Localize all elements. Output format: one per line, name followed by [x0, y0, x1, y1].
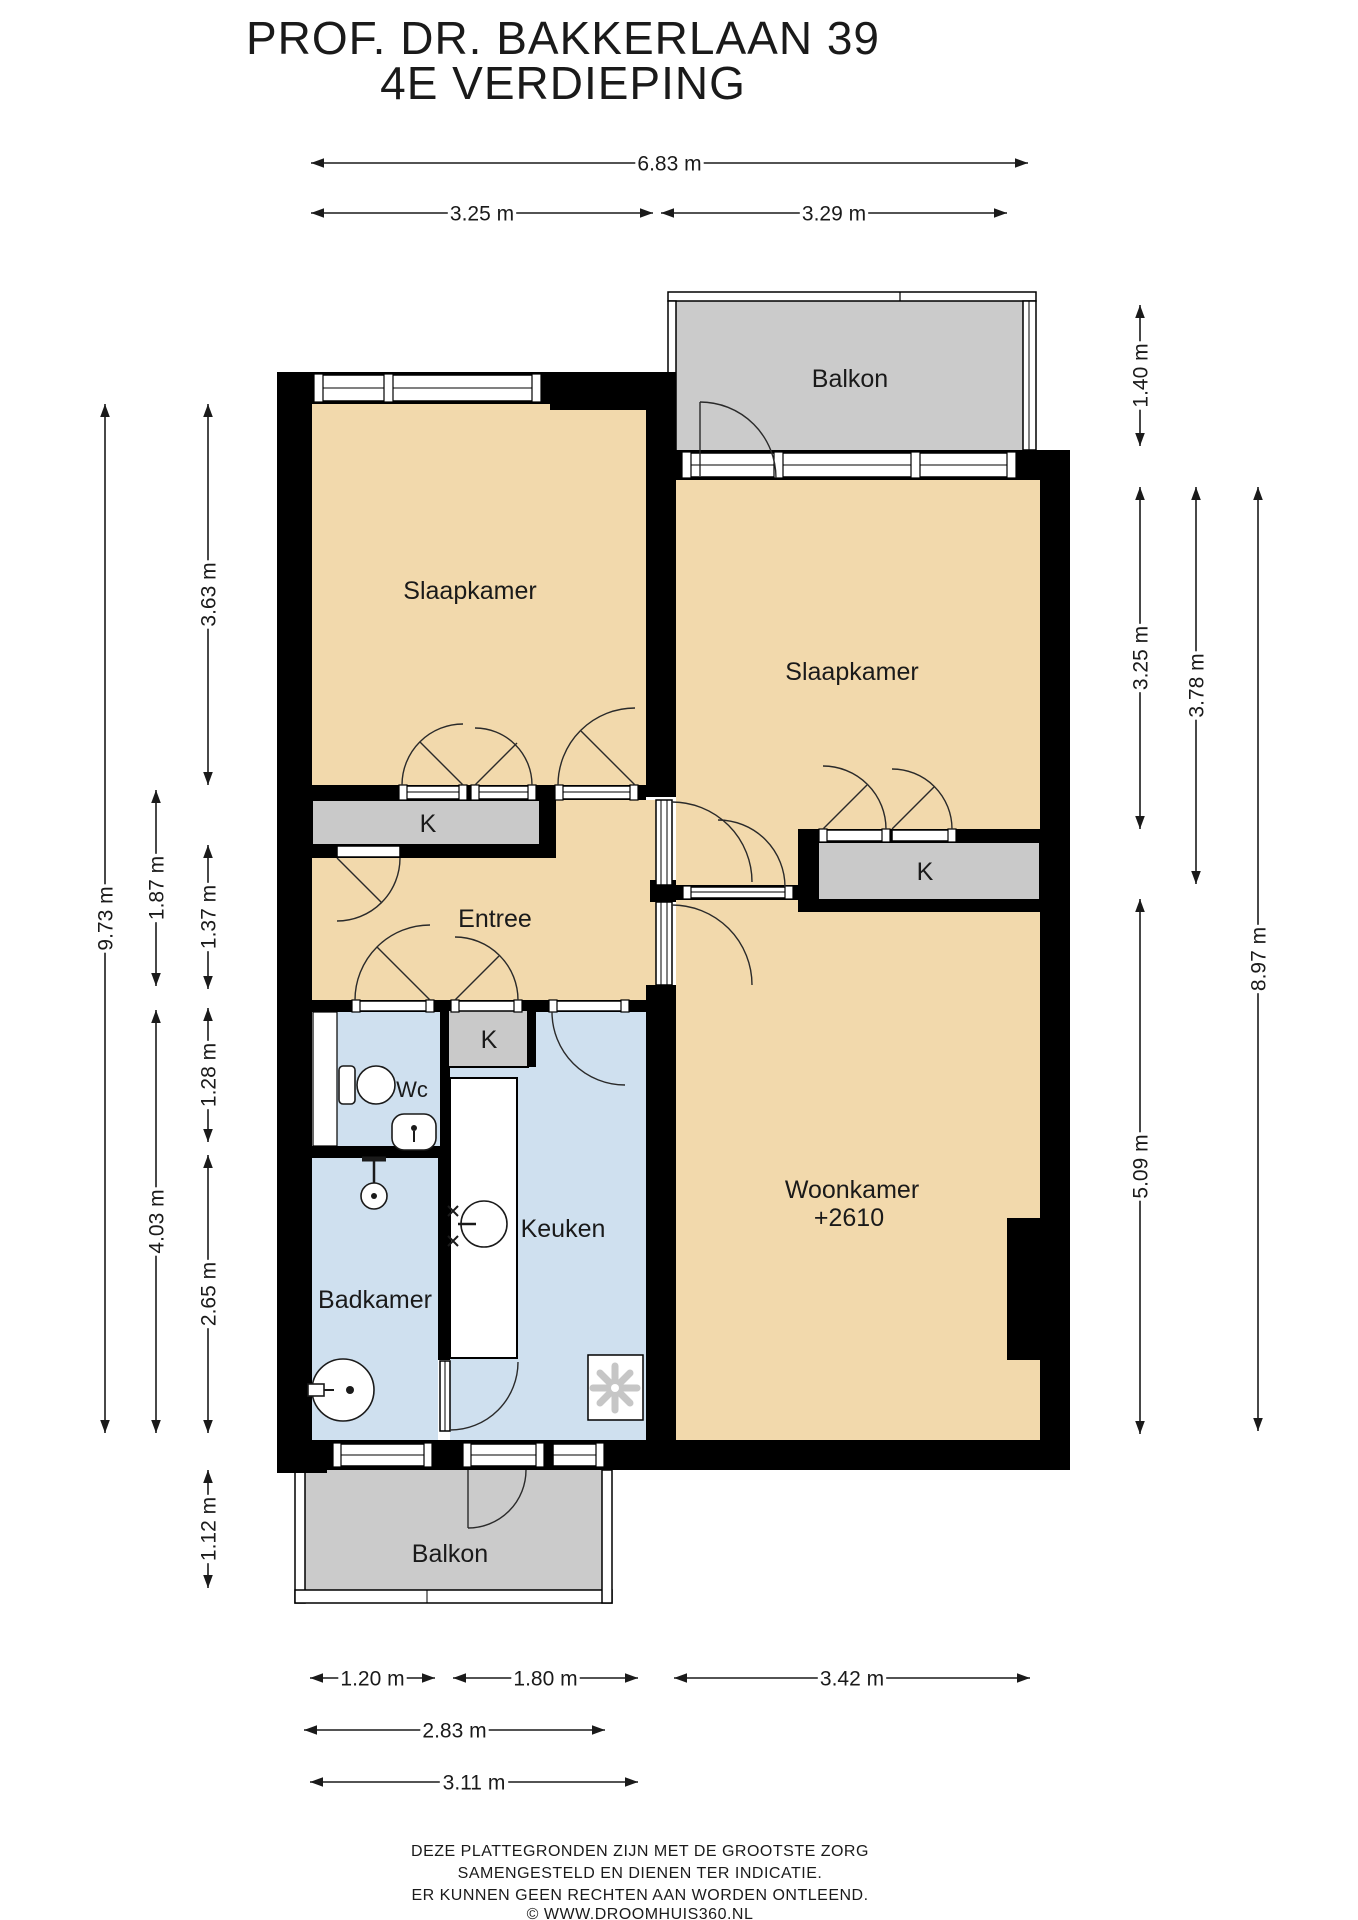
- dim-label: 3.63 m: [198, 562, 221, 626]
- dimension-6-83-m: 6.83 m: [311, 150, 1028, 176]
- balkon-bottom-floor: [305, 1470, 602, 1590]
- dimension-2-83-m: 2.83 m: [304, 1717, 605, 1743]
- floorplan-page: PROF. DR. BAKKERLAAN 39 4E VERDIEPING: [0, 0, 1358, 1920]
- label-woonkamer-height: +2610: [814, 1204, 884, 1232]
- label-balkon-top: Balkon: [812, 365, 888, 393]
- label-badkamer: Badkamer: [318, 1286, 432, 1314]
- wall-bottom-left-pier: [277, 1440, 327, 1473]
- dim-label: 8.97 m: [1248, 927, 1271, 991]
- dimension-1-28-m: 1.28 m: [195, 1008, 221, 1142]
- dim-label: 1.28 m: [198, 1043, 221, 1107]
- dim-label: 4.03 m: [146, 1189, 169, 1253]
- dim-label: 1.40 m: [1130, 343, 1153, 407]
- label-slaapkamer-left: Slaapkamer: [403, 577, 536, 605]
- stove-icon: [588, 1355, 643, 1420]
- dimension-1-87-m: 1.87 m: [143, 790, 169, 986]
- dimension-8-97-m: 8.97 m: [1245, 487, 1271, 1431]
- dimension-1-12-m: 1.12 m: [195, 1470, 221, 1588]
- dim-label: 1.37 m: [198, 885, 221, 949]
- dim-label: 5.09 m: [1130, 1134, 1153, 1198]
- dimension-3-25-m: 3.25 m: [311, 200, 653, 226]
- dimension-1-37-m: 1.37 m: [195, 845, 221, 989]
- dim-label: 3.25 m: [450, 203, 514, 226]
- floorplan-drawing: PROF. DR. BAKKERLAAN 39 4E VERDIEPING: [0, 0, 1358, 1920]
- shaft: [313, 1012, 337, 1146]
- footer-disclaimer: DEZE PLATTEGRONDEN ZIJN MET DE GROOTSTE …: [411, 1843, 869, 1920]
- page-title-line2: 4E VERDIEPING: [380, 57, 746, 109]
- balkon-bottom-right-rail: [602, 1470, 612, 1603]
- woonkamer-floor: [676, 900, 1040, 1440]
- balkon-bottom-rail: [295, 1590, 612, 1603]
- label-balkon-bottom: Balkon: [412, 1540, 488, 1568]
- dim-label: 3.11 m: [443, 1772, 506, 1795]
- dimension-1-20-m: 1.20 m: [310, 1665, 435, 1691]
- footer-line3: ER KUNNEN GEEN RECHTEN AAN WORDEN ONTLEE…: [411, 1887, 868, 1904]
- dim-label: 1.12 m: [198, 1497, 221, 1561]
- dimension-3-78-m: 3.78 m: [1183, 487, 1209, 884]
- dimension-3-29-m: 3.29 m: [661, 200, 1007, 226]
- wall-right-notch: [1007, 1218, 1040, 1360]
- dim-label: 6.83 m: [637, 153, 701, 176]
- balkon-top-rail: [668, 292, 1036, 301]
- dim-label: 1.87 m: [146, 856, 169, 920]
- footer-line2: SAMENGESTELD EN DIENEN TER INDICATIE.: [458, 1865, 823, 1882]
- dimension-3-25-m: 3.25 m: [1127, 487, 1153, 829]
- dimension-3-11-m: 3.11 m: [310, 1769, 638, 1795]
- dim-label: 9.73 m: [95, 886, 118, 950]
- label-closet-middle: K: [481, 1026, 498, 1054]
- wall-k2-right: [528, 1012, 536, 1067]
- hand-basin-icon: [392, 1114, 436, 1150]
- wall-keuken-woonkamer: [646, 985, 676, 1440]
- wall-right-exterior: [1040, 450, 1070, 1470]
- dim-label: 2.65 m: [198, 1262, 221, 1326]
- footer-line4: © WWW.DROOMHUIS360.NL: [527, 1906, 754, 1920]
- label-woonkamer: Woonkamer: [785, 1176, 919, 1204]
- dimension-9-73-m: 9.73 m: [92, 404, 118, 1433]
- dimension-3-42-m: 3.42 m: [674, 1665, 1030, 1691]
- dim-label: 3.25 m: [1130, 626, 1153, 690]
- dim-label: 2.83 m: [422, 1720, 486, 1743]
- dimension-4-03-m: 4.03 m: [143, 1010, 169, 1433]
- balkon-bottom-left-rail: [295, 1470, 305, 1603]
- label-keuken: Keuken: [521, 1215, 606, 1243]
- wall-left-exterior: [277, 372, 312, 1470]
- dimension-2-65-m: 2.65 m: [195, 1155, 221, 1433]
- label-closet-left: K: [420, 810, 437, 838]
- toilet-icon: [339, 1066, 395, 1104]
- wall-k3-left-block: [798, 829, 818, 912]
- wall-k3-bottom: [798, 900, 1040, 912]
- dim-label: 1.20 m: [340, 1668, 404, 1691]
- label-closet-right: K: [917, 858, 934, 886]
- wall-center-bedrooms: [646, 402, 676, 797]
- label-wc: Wc: [396, 1077, 428, 1102]
- wall-badkamer-keuken: [438, 1158, 450, 1360]
- label-slaapkamer-right: Slaapkamer: [785, 658, 918, 686]
- dim-label: 1.80 m: [513, 1668, 577, 1691]
- footer-line1: DEZE PLATTEGRONDEN ZIJN MET DE GROOTSTE …: [411, 1843, 869, 1860]
- label-entree: Entree: [458, 905, 532, 933]
- dim-label: 3.29 m: [802, 203, 866, 226]
- dimension-1-40-m: 1.40 m: [1127, 305, 1153, 446]
- dimension-3-63-m: 3.63 m: [195, 404, 221, 785]
- dim-label: 3.78 m: [1186, 653, 1209, 717]
- dimension-5-09-m: 5.09 m: [1127, 899, 1153, 1434]
- dim-label: 3.42 m: [820, 1668, 884, 1691]
- dimension-1-80-m: 1.80 m: [453, 1665, 638, 1691]
